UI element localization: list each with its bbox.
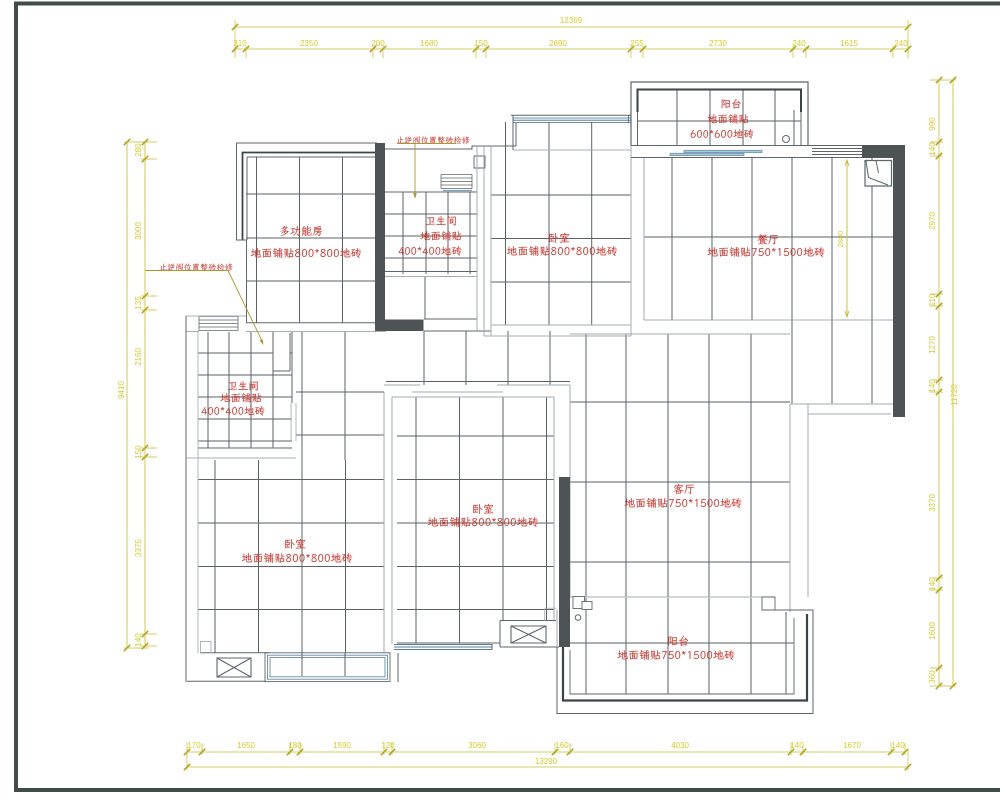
svg-text:13290: 13290 <box>535 757 558 766</box>
svg-text:3060: 3060 <box>468 741 486 750</box>
svg-text:1600: 1600 <box>928 622 937 640</box>
svg-text:4030: 4030 <box>671 741 689 750</box>
svg-text:310: 310 <box>233 39 247 48</box>
svg-text:1650: 1650 <box>237 741 255 750</box>
svg-text:280: 280 <box>134 143 143 157</box>
svg-text:240: 240 <box>894 39 908 48</box>
svg-text:1590: 1590 <box>333 741 351 750</box>
svg-text:160: 160 <box>555 741 569 750</box>
svg-text:135: 135 <box>134 296 143 310</box>
svg-text:1270: 1270 <box>928 336 937 354</box>
svg-text:3370: 3370 <box>928 494 937 512</box>
svg-text:150: 150 <box>134 445 143 459</box>
svg-text:255: 255 <box>630 39 644 48</box>
svg-text:11720: 11720 <box>950 384 959 406</box>
svg-text:240: 240 <box>792 39 806 48</box>
svg-text:360: 360 <box>928 670 937 684</box>
svg-text:2880: 2880 <box>836 231 845 248</box>
svg-text:3375: 3375 <box>134 539 143 557</box>
svg-text:2970: 2970 <box>928 212 937 230</box>
svg-text:200: 200 <box>371 39 385 48</box>
svg-text:150: 150 <box>474 39 488 48</box>
svg-text:140: 140 <box>134 633 143 647</box>
svg-text:140: 140 <box>928 379 937 393</box>
svg-text:140: 140 <box>928 577 937 591</box>
svg-text:9410: 9410 <box>117 381 126 399</box>
svg-text:12369: 12369 <box>560 16 583 25</box>
svg-text:2160: 2160 <box>134 348 143 366</box>
svg-text:140: 140 <box>928 142 937 156</box>
svg-text:990: 990 <box>928 117 937 131</box>
svg-text:170: 170 <box>187 741 201 750</box>
svg-text:140: 140 <box>790 741 804 750</box>
svg-text:2350: 2350 <box>300 39 318 48</box>
svg-text:110: 110 <box>928 293 937 306</box>
svg-text:2690: 2690 <box>549 39 567 48</box>
svg-text:1615: 1615 <box>840 39 858 48</box>
svg-text:1670: 1670 <box>843 741 861 750</box>
svg-text:3000: 3000 <box>134 222 143 240</box>
svg-text:140: 140 <box>891 741 905 750</box>
svg-text:180: 180 <box>288 741 302 750</box>
svg-text:1680: 1680 <box>420 39 438 48</box>
svg-text:2730: 2730 <box>709 39 727 48</box>
svg-text:120: 120 <box>381 741 395 750</box>
